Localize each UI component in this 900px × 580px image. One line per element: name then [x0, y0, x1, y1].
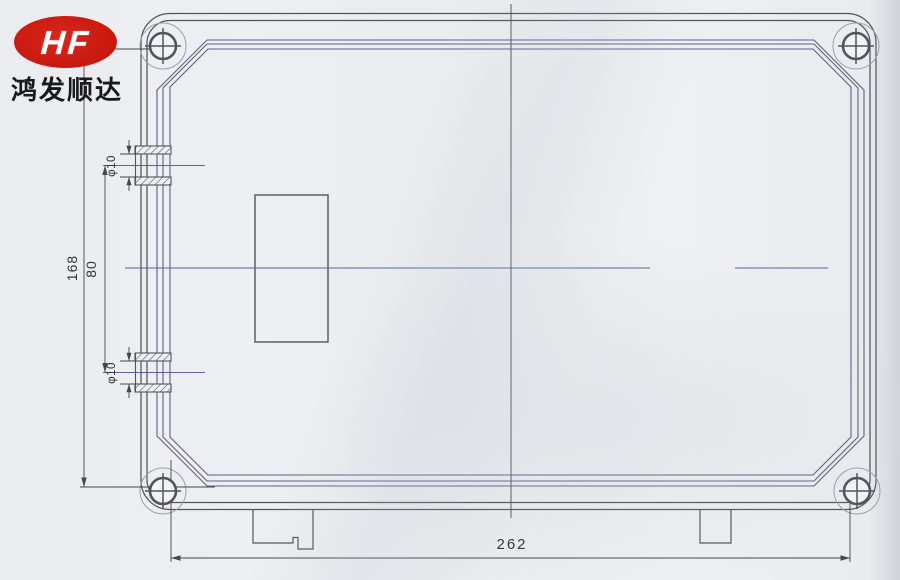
- dim-mount-height-label: 168: [64, 255, 80, 281]
- enclosure-drawing: 262 168 80 φ10 φ10: [0, 0, 900, 580]
- dimension-lines: [80, 49, 850, 562]
- lid-outline: [141, 14, 876, 550]
- screw-bottom-left: [145, 473, 181, 509]
- company-name: 鸿发顺达: [11, 70, 123, 107]
- mounting-tab-left: [253, 509, 313, 549]
- scanned-drawing-page: 262 168 80 φ10 φ10 HF 鸿发顺达: [0, 0, 900, 580]
- mounting-tab-right: [700, 509, 731, 543]
- brand-logo: HF: [14, 16, 117, 68]
- dim-entry-spacing-label: 80: [83, 260, 99, 278]
- dimension-arrowheads: [81, 49, 850, 561]
- brand-monogram: HF: [39, 26, 91, 59]
- dim-entry-dia-bottom-label: φ10: [106, 362, 118, 384]
- screw-top-right: [838, 28, 874, 64]
- dim-overall-width-label: 262: [496, 536, 527, 553]
- dim-entry-dia-top-label: φ10: [106, 155, 118, 177]
- centerlines: [103, 4, 828, 518]
- screw-top-left: [145, 28, 181, 64]
- dimension-labels: 262 168 80 φ10 φ10: [64, 155, 528, 553]
